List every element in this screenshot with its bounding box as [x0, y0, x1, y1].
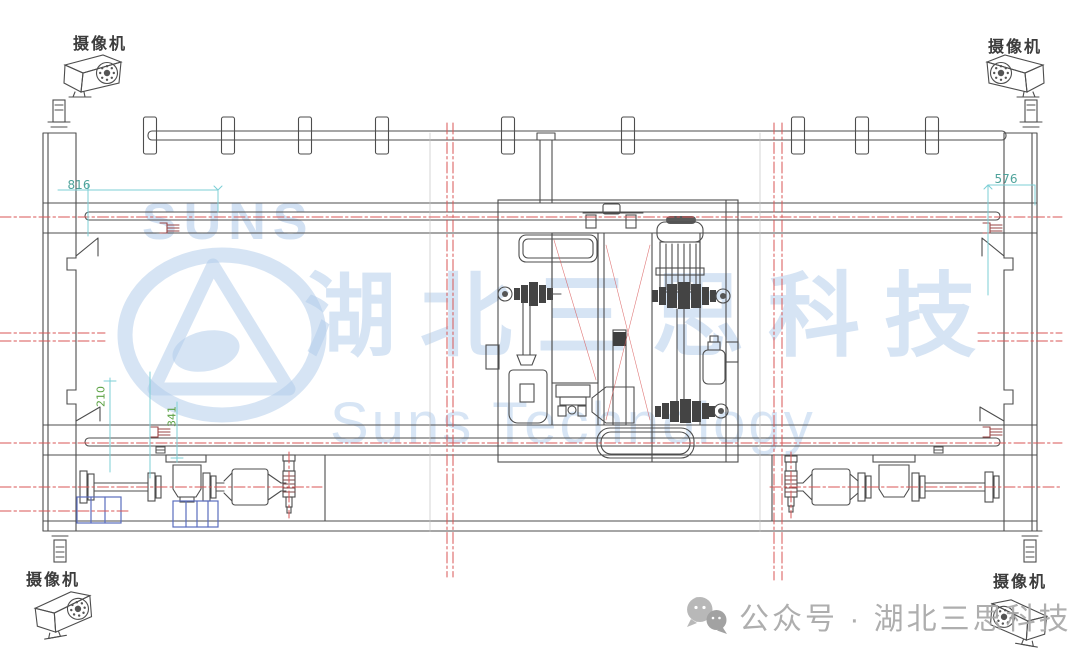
- camera-top-right: [987, 55, 1044, 97]
- machine-frame: [43, 100, 1042, 562]
- corner-bolts: [48, 100, 1042, 562]
- camera-label-bottom-right: 摄像机: [993, 568, 1047, 592]
- dimension-816: 816: [58, 178, 100, 192]
- sample-bottle: [509, 370, 547, 423]
- dimension-576: 576: [985, 172, 1027, 186]
- engineering-drawing: [0, 0, 1080, 661]
- lower-coupling: [655, 399, 728, 423]
- upper-guide-rod: [85, 212, 1000, 220]
- wechat-icon: [684, 595, 730, 637]
- drive-shaft: [677, 309, 684, 402]
- footer-watermark-text: 公众号 · 湖北三思科技: [739, 594, 1072, 638]
- dimension-210: 210: [95, 382, 108, 412]
- footer-watermark: 公众号 · 湖北三思科技: [684, 594, 1072, 638]
- regulator-left: [283, 455, 295, 513]
- valve-body-right: [879, 465, 909, 497]
- vertical-motor: [656, 216, 704, 292]
- rail-clamps: [144, 117, 939, 154]
- motor-coupling: [652, 282, 730, 309]
- camera-label-top-left: 摄像机: [73, 30, 127, 54]
- camera-bottom-left: [32, 589, 95, 640]
- camera-top-left: [64, 55, 121, 97]
- camera-label-bottom-left: 摄像机: [26, 566, 80, 590]
- dimension-341: 341: [166, 403, 179, 431]
- feed-rod: [517, 302, 536, 365]
- camera-label-top-right: 摄像机: [988, 33, 1042, 57]
- piping-right: [785, 447, 999, 512]
- right-canister: [703, 336, 725, 384]
- centerlines: [0, 123, 1062, 580]
- dimension-lines: [58, 184, 1035, 478]
- valve-body: [173, 465, 201, 497]
- drawing-sheet: SUNS 湖北三思科技 Suns Technology: [0, 0, 1080, 661]
- valve-top-plate-right: [873, 455, 915, 462]
- central-test-unit: [486, 200, 738, 462]
- regulator-right: [785, 456, 797, 512]
- hanger-post: [537, 133, 555, 203]
- lower-guide-rod: [85, 438, 1000, 446]
